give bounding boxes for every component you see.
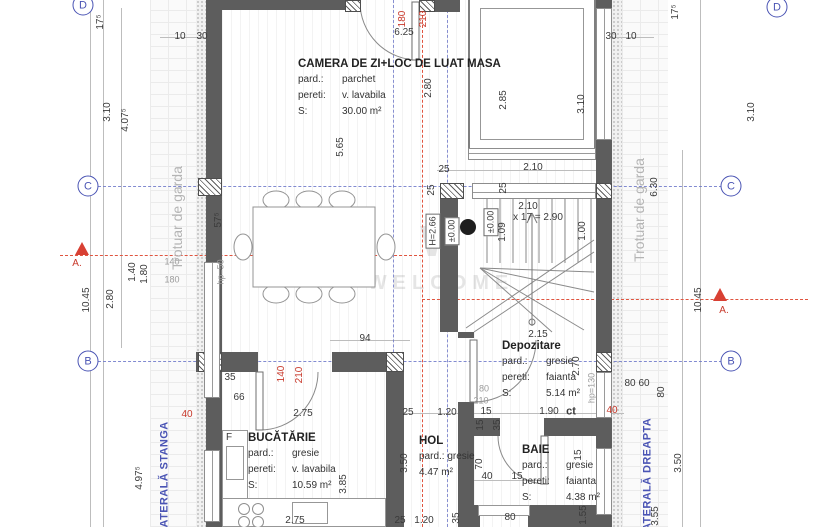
dimension-label: 210: [295, 367, 305, 384]
room-label-bucatarie: BUCĂTĂRIEpard.:gresiepereti:v. lavabilaS…: [248, 432, 336, 496]
dimension-label: A.: [72, 259, 81, 269]
dimension-label: 57⁵: [214, 212, 224, 227]
room-label-baie: BAIEpard.:gresiepereti:faiantaS:4.38 m²: [522, 444, 600, 508]
dimension-label: LATERALĂ STANGA: [160, 421, 171, 527]
dimension-label: 10: [174, 32, 185, 42]
dimension-label: 1.55: [579, 505, 589, 524]
dimension-label: LATERALĂ DREAPTA: [643, 418, 654, 527]
room-title-camera: CAMERA DE ZI+LOC DE LUAT MASA: [298, 58, 501, 70]
dimension-label: 1.40: [128, 262, 138, 281]
room-detail-label: pereti:: [522, 476, 566, 487]
dimension-label: x 17 = 2.90: [513, 213, 563, 223]
room-label-depozitare: Depozitarepard.:gresiepereti:faiantaS:5.…: [502, 340, 580, 404]
room-detail-row: S:5.14 m²: [502, 388, 580, 399]
dimension-label: 3.50: [400, 453, 410, 472]
room-label-hol: HOLpard.: gresie4.47 m²: [419, 435, 475, 483]
dimension-label: 2.80: [106, 289, 116, 308]
room-detail-row: pereti:faianta: [502, 372, 580, 383]
room-detail-row: pereti:v. lavabila: [248, 464, 336, 475]
room-detail-value: 4.38 m²: [566, 492, 600, 503]
dimension-label: 180: [398, 11, 408, 28]
dimension-label: 1.00: [578, 221, 588, 240]
room-detail-value: gresie: [292, 448, 319, 459]
room-detail-row: S:10.59 m²: [248, 480, 336, 491]
dimension-label: 40: [181, 410, 192, 420]
dimension-label: 80: [624, 379, 635, 389]
room-detail-label: pard.:: [502, 356, 546, 367]
dimension-label: 35: [224, 373, 235, 383]
room-detail-label: pard.: gresie: [419, 451, 475, 462]
room-detail-label: S:: [248, 480, 292, 491]
room-title-baie: BAIE: [522, 444, 600, 456]
dimension-label: 15: [511, 472, 522, 482]
dimension-label: 80: [504, 513, 515, 523]
room-detail-row: pard.:parchet: [298, 74, 501, 85]
dimension-label: hp=130: [588, 373, 597, 403]
room-detail-value: v. lavabila: [292, 464, 336, 475]
dimension-label: 25: [438, 165, 449, 175]
stove-burner: [238, 516, 250, 527]
dimension-label: 3.10: [103, 102, 113, 121]
dimension-label: F: [226, 433, 232, 443]
room-title-depozitare: Depozitare: [502, 340, 580, 352]
dimension-label: 3.85: [339, 474, 349, 493]
room-title-hol: HOL: [419, 435, 475, 447]
stove-burner: [238, 503, 250, 515]
dimension-label: 3.10: [747, 102, 757, 121]
room-detail-row: pard.:gresie: [502, 356, 580, 367]
dimension-label: 3.10: [577, 94, 587, 113]
dimension-label: 66: [233, 393, 244, 403]
dimension-label: 4.97⁵: [135, 466, 145, 490]
column-hatch: [596, 352, 612, 372]
column-hatch: [198, 178, 222, 196]
structural-column: [460, 219, 476, 235]
room-detail-value: 5.14 m²: [546, 388, 580, 399]
dimension-label: ±0.00: [445, 217, 460, 245]
dimension-label: 2.75: [285, 516, 304, 526]
dimension-label: 1.90: [539, 407, 558, 417]
room-detail-label: 4.47 m²: [419, 467, 453, 478]
room-detail-value: 10.59 m²: [292, 480, 331, 491]
column-hatch: [386, 352, 404, 372]
column-hatch: [345, 0, 361, 12]
dimension-label: 10.45: [694, 287, 704, 312]
dimension-label: 80: [657, 386, 667, 397]
dimension-label: 40: [481, 472, 492, 482]
room-detail-label: pard.:: [298, 74, 342, 85]
dimension-label: hp=50: [217, 259, 226, 284]
dimension-label: 2.75: [293, 409, 312, 419]
dimension-label: 35: [452, 512, 462, 523]
dimension-label: 210: [419, 11, 429, 28]
axis-bubble-B: B: [78, 351, 99, 372]
axis-bubble-B: B: [721, 351, 742, 372]
room-label-camera: CAMERA DE ZI+LOC DE LUAT MASApard.:parch…: [298, 58, 501, 122]
room-detail-value: faianta: [546, 372, 576, 383]
axis-bubble-C: C: [78, 176, 99, 197]
dimension-label: H=2.66: [426, 213, 441, 248]
floor-plan: W WELCOME 17⁵3.104.07⁵10.452.801.401.801…: [0, 0, 832, 527]
room-detail-label: S:: [298, 106, 342, 117]
dimension-label: 2.10: [518, 202, 537, 212]
dimension-label: 10.45: [82, 287, 92, 312]
room-detail-row: pard.:gresie: [522, 460, 600, 471]
glazing-axis-C: [472, 183, 596, 199]
dimension-label: 25: [427, 184, 437, 195]
dimension-label: 40: [606, 406, 617, 416]
room-detail-row: S:30.00 m²: [298, 106, 501, 117]
dimension-label: 30: [196, 32, 207, 42]
room-detail-label: pereti:: [502, 372, 546, 383]
dimension-label: 25: [499, 182, 509, 193]
room-detail-value: parchet: [342, 74, 375, 85]
room-detail-row: pard.:gresie: [248, 448, 336, 459]
dimension-label: 35: [493, 419, 503, 430]
window-left-kitchen: [204, 450, 220, 522]
dimension-label: 15: [476, 419, 486, 430]
dimension-label: 94: [359, 334, 370, 344]
stove-burner: [252, 516, 264, 527]
dimension-label: 180: [164, 276, 179, 285]
dimension-label: 1.80: [140, 264, 150, 283]
room-detail-label: pereti:: [298, 90, 342, 101]
dimension-label: 2.10: [523, 163, 542, 173]
room-detail-label: S:: [502, 388, 546, 399]
dimension-label: Trotuar de garda: [632, 158, 646, 262]
dimension-label: 210: [473, 397, 488, 406]
room-detail-row: pereti:v. lavabila: [298, 90, 501, 101]
dimension-label: 1.20: [437, 408, 456, 418]
dimension-label: 17⁵: [671, 4, 681, 19]
dimension-label: 6.25: [394, 28, 413, 38]
dimension-label: 30: [605, 32, 616, 42]
room-title-bucatarie: BUCĂTĂRIE: [248, 432, 336, 444]
room-detail-label: pard.:: [248, 448, 292, 459]
room-detail-label: pereti:: [248, 464, 292, 475]
dimension-label: 17⁵: [96, 14, 106, 29]
room-detail-row: pard.: gresie: [419, 451, 475, 462]
room-detail-value: faianta: [566, 476, 596, 487]
dimension-label: 140: [277, 366, 287, 383]
room-detail-row: pereti:faianta: [522, 476, 600, 487]
dimension-label: Trotuar de garda: [170, 166, 184, 270]
dimension-label: 15: [480, 407, 491, 417]
dimension-label: 1.20: [414, 516, 433, 526]
room-detail-value: gresie: [566, 460, 593, 471]
room-detail-label: S:: [522, 492, 566, 503]
window-right-top: [596, 8, 612, 140]
dimension-label: 3.50: [674, 453, 684, 472]
room-detail-value: 30.00 m²: [342, 106, 381, 117]
room-detail-row: 4.47 m²: [419, 467, 475, 478]
dimension-label: ct: [566, 407, 576, 418]
dimension-label: 60: [638, 379, 649, 389]
dimension-label: 25: [394, 516, 405, 526]
column-hatch: [596, 183, 612, 199]
dining-table-set: [234, 191, 395, 303]
room-detail-row: S:4.38 m²: [522, 492, 600, 503]
dimension-label: 1.09: [498, 222, 508, 241]
room-detail-value: gresie: [546, 356, 573, 367]
dimension-label: 70: [475, 458, 485, 469]
dimension-label: 5.65: [336, 137, 346, 156]
window-sill-band: [468, 148, 596, 160]
stove-burner: [252, 503, 264, 515]
room-detail-label: pard.:: [522, 460, 566, 471]
dimension-label: A.: [719, 306, 728, 316]
column-hatch: [440, 183, 464, 199]
axis-bubble-C: C: [721, 176, 742, 197]
dimension-label: 10: [625, 32, 636, 42]
dimension-label: 80: [479, 385, 489, 394]
dimension-label: 2.15: [528, 330, 547, 340]
room-detail-value: v. lavabila: [342, 90, 386, 101]
dimension-label: 4.07⁵: [121, 108, 131, 132]
dimension-label: 25: [402, 408, 413, 418]
dimension-label: 6.30: [650, 177, 660, 196]
kitchen-sink: [226, 446, 244, 480]
